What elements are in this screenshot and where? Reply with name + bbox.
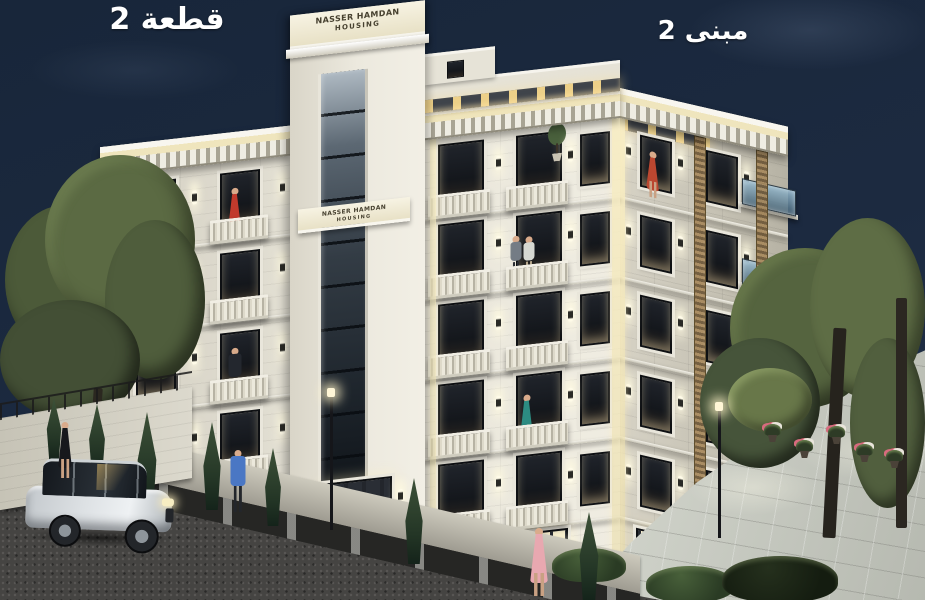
sconce-light <box>626 143 631 158</box>
bush <box>646 566 734 600</box>
sconce-light <box>568 467 573 482</box>
sconce-light <box>280 420 285 435</box>
plot-label: قطعة 2 <box>92 2 242 37</box>
sconce-light <box>496 396 501 411</box>
window <box>580 211 610 266</box>
person-body <box>228 353 241 378</box>
person-legs <box>61 459 69 478</box>
person-black-dress <box>58 422 72 478</box>
person-head <box>62 422 69 429</box>
corner-accent-band <box>620 116 625 600</box>
person-legs <box>233 486 241 512</box>
sconce-light <box>626 223 631 238</box>
person-body <box>523 242 534 261</box>
sconce-light <box>496 476 501 491</box>
plant-stem <box>556 143 558 153</box>
car-headlight <box>162 498 174 506</box>
sconce-light <box>626 303 631 318</box>
sconce-light <box>568 307 573 322</box>
street-lamp-pole <box>718 410 721 538</box>
sconce-light <box>280 340 285 355</box>
sconce-light <box>280 260 285 275</box>
street-lamp-pole <box>330 396 333 530</box>
tree-foliage <box>850 338 925 508</box>
flower-pot <box>856 444 873 456</box>
person-red-dress-balcony <box>646 150 659 199</box>
sconce-light <box>568 227 573 242</box>
plant-pot <box>552 153 562 162</box>
window <box>580 371 610 426</box>
sconce-light <box>568 147 573 162</box>
sconce-light <box>496 156 501 171</box>
sconce-light <box>626 463 631 478</box>
flower-pot <box>886 450 903 462</box>
person-body <box>230 456 245 486</box>
window <box>706 150 738 209</box>
window <box>640 375 672 434</box>
sconce-light <box>280 180 285 195</box>
building-label: مبنى 2 <box>648 16 758 46</box>
window <box>580 291 610 346</box>
cloud-streak <box>30 40 240 100</box>
balcony-balustrade <box>210 214 268 245</box>
balcony-plant <box>548 122 566 162</box>
sconce-light <box>626 383 631 398</box>
attic-window <box>447 60 464 79</box>
lit-shrub <box>728 368 812 432</box>
car-grille <box>165 508 173 522</box>
person-blue-shirt <box>230 450 245 512</box>
sconce-light <box>678 475 683 490</box>
sconce-light <box>678 315 683 330</box>
bush-dark <box>722 556 838 600</box>
balcony-balustrade <box>210 374 268 405</box>
street-lamp-light <box>327 388 335 397</box>
street-lamp-light <box>715 402 723 411</box>
suv-car <box>24 449 177 550</box>
flower-pot <box>796 440 813 452</box>
window <box>580 131 610 186</box>
night-render-scene: NASSER HAMDAN HOUSING NASSER HAMDAN HOUS… <box>0 0 925 600</box>
sconce-light <box>568 387 573 402</box>
flower-pot <box>764 424 781 436</box>
stairwell-glazing <box>318 69 368 485</box>
tree-trunk <box>896 298 907 528</box>
sconce-light <box>678 395 683 410</box>
sconce-light <box>496 316 501 331</box>
person-body <box>510 241 521 261</box>
person-pink-dress <box>530 528 548 596</box>
car-windshield-glare <box>96 464 139 491</box>
sconce-light <box>678 155 683 170</box>
window <box>640 215 672 274</box>
balcony-balustrade <box>210 294 268 325</box>
corner-accent-band <box>612 88 620 600</box>
window <box>640 295 672 354</box>
sconce-light <box>496 236 501 251</box>
window <box>640 455 672 514</box>
car-wheel <box>124 519 159 554</box>
flower-pot <box>828 426 845 438</box>
window <box>580 451 610 506</box>
person-legs <box>649 181 656 198</box>
sconce-light <box>678 235 683 250</box>
tree-right <box>700 218 925 518</box>
person-legs <box>534 573 544 596</box>
